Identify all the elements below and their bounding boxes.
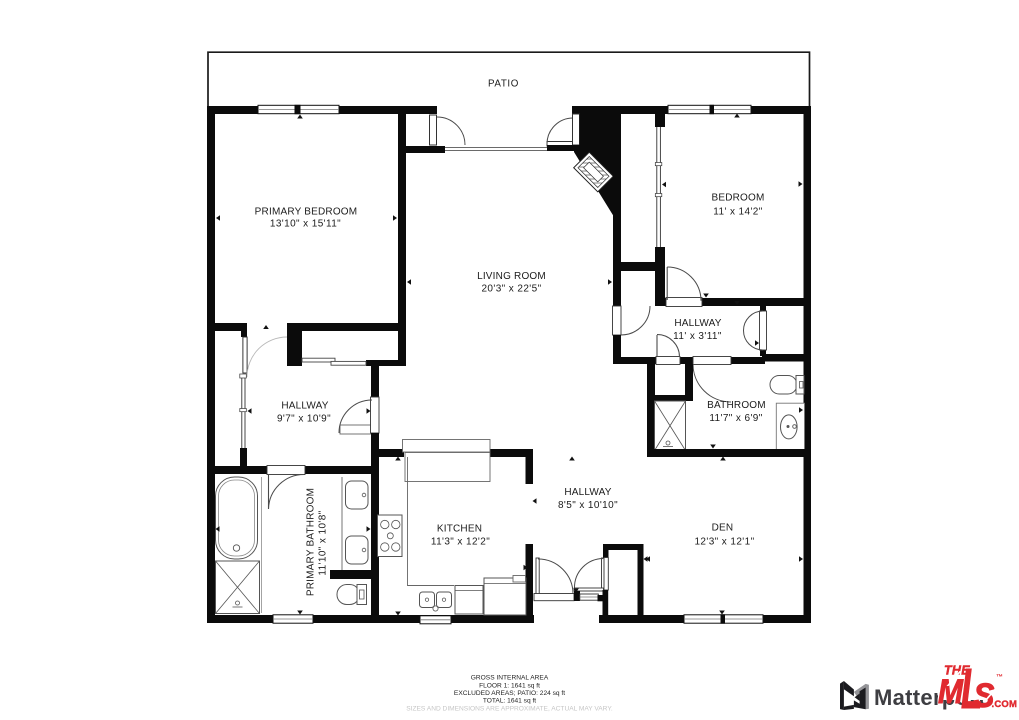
svg-text:9'7" x 10'9": 9'7" x 10'9" [277, 414, 331, 425]
svg-text:13'10" x 15'11": 13'10" x 15'11" [270, 219, 341, 230]
svg-text:EXCLUDED AREAS; PATIO: 224 sq: EXCLUDED AREAS; PATIO: 224 sq ft [454, 690, 565, 697]
svg-text:HALLWAY: HALLWAY [281, 401, 328, 412]
svg-text:HALLWAY: HALLWAY [564, 487, 611, 498]
svg-text:12'3" x 12'1": 12'3" x 12'1" [694, 537, 754, 548]
svg-text:™: ™ [996, 674, 1003, 681]
svg-text:8'5" x 10'10": 8'5" x 10'10" [558, 500, 618, 511]
svg-text:M: M [938, 672, 964, 710]
svg-text:PRIMARY BATHROOM: PRIMARY BATHROOM [306, 488, 317, 596]
svg-text:PRIMARY BEDROOM: PRIMARY BEDROOM [255, 207, 358, 218]
svg-text:FLOOR 1: 1641 sq ft: FLOOR 1: 1641 sq ft [479, 682, 540, 689]
svg-text:LIVING ROOM: LIVING ROOM [477, 271, 546, 282]
svg-text:11' x 3'11": 11' x 3'11" [673, 331, 722, 342]
svg-text:11'7" x 6'9": 11'7" x 6'9" [709, 413, 762, 424]
svg-text:BATHROOM: BATHROOM [707, 400, 766, 411]
svg-text:GROSS INTERNAL AREA: GROSS INTERNAL AREA [471, 675, 549, 682]
svg-text:TOTAL: 1641 sq ft: TOTAL: 1641 sq ft [483, 698, 536, 705]
svg-text:20'3" x 22'5": 20'3" x 22'5" [481, 284, 541, 295]
svg-text:SIZES AND DIMENSIONS ARE APPRO: SIZES AND DIMENSIONS ARE APPROXIMATE, AC… [406, 705, 613, 712]
svg-text:11' x 14'2": 11' x 14'2" [713, 207, 762, 218]
svg-text:DEN: DEN [712, 523, 734, 534]
svg-text:HALLWAY: HALLWAY [674, 318, 721, 329]
svg-text:BEDROOM: BEDROOM [711, 193, 764, 204]
svg-text:.COM: .COM [992, 699, 1018, 710]
svg-text:11'10" x 10'8": 11'10" x 10'8" [318, 510, 329, 575]
svg-text:11'3" x 12'2": 11'3" x 12'2" [431, 537, 490, 548]
svg-text:PATIO: PATIO [488, 79, 519, 90]
svg-text:KITCHEN: KITCHEN [437, 524, 482, 535]
